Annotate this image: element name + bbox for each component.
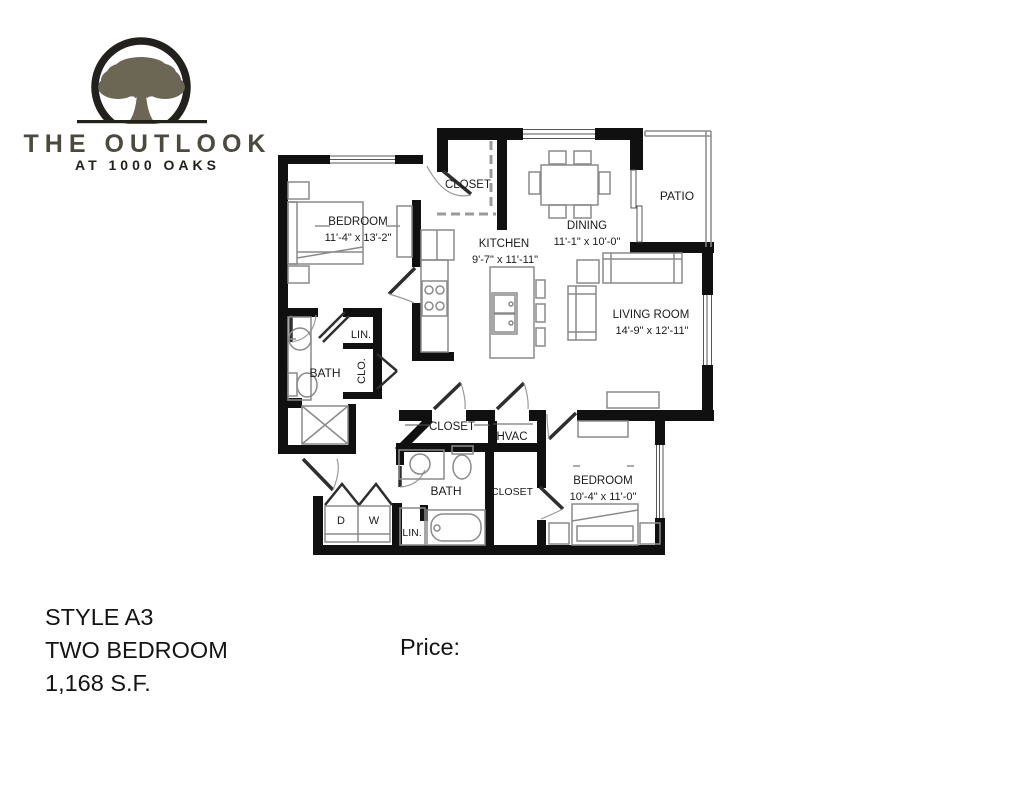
linen2-label: LIN. bbox=[402, 527, 421, 539]
washer-dryer-closet bbox=[325, 506, 390, 542]
price-label: Price: bbox=[400, 634, 460, 661]
sofa bbox=[603, 253, 682, 283]
kitchen-label: KITCHEN bbox=[479, 238, 529, 250]
side-table bbox=[577, 260, 599, 283]
armchair bbox=[568, 286, 596, 340]
console-table bbox=[607, 392, 659, 408]
style-label: STYLE A3 bbox=[45, 601, 228, 634]
bath2-label: BATH bbox=[430, 484, 461, 498]
stove bbox=[422, 281, 447, 316]
washer-label: W bbox=[369, 515, 380, 527]
room-labels: BEDROOM 11'-4" x 13'-2" CLOSET DINING 11… bbox=[309, 179, 694, 539]
dining-window bbox=[523, 128, 595, 140]
nightstand bbox=[288, 182, 309, 199]
hvac-label: HVAC bbox=[496, 431, 527, 443]
walkin-closet-label: CLOSET bbox=[491, 486, 534, 498]
bedroom2-dims: 10'-4" x 11'-0" bbox=[570, 491, 637, 503]
dining-dims: 11'-1" x 10'-0" bbox=[554, 236, 621, 248]
nightstand bbox=[549, 523, 569, 544]
patio-label: PATIO bbox=[660, 189, 694, 203]
bedroom1-window bbox=[330, 155, 395, 164]
dryer-label: D bbox=[337, 515, 345, 527]
dining-table-set bbox=[529, 151, 610, 218]
dresser-2 bbox=[578, 421, 628, 437]
hall-closet-label: CLOSET bbox=[429, 421, 475, 433]
unit-info: STYLE A3 TWO BEDROOM 1,168 S.F. bbox=[45, 601, 228, 700]
nightstand bbox=[288, 266, 309, 283]
bedroom2-label: BEDROOM bbox=[573, 475, 632, 487]
linen1-label: LIN. bbox=[351, 329, 371, 341]
dresser-1 bbox=[397, 206, 412, 257]
refrigerator bbox=[421, 230, 454, 260]
sink-2 bbox=[410, 454, 430, 474]
area-label: 1,168 S.F. bbox=[45, 667, 228, 700]
bed-2 bbox=[572, 504, 638, 545]
windows bbox=[330, 128, 713, 518]
bedroom2-window bbox=[655, 445, 665, 518]
patio-sliding-door bbox=[631, 170, 642, 242]
bedroom1-label: BEDROOM bbox=[328, 216, 387, 228]
bath1-label: BATH bbox=[309, 366, 340, 380]
living-label: LIVING ROOM bbox=[613, 309, 690, 321]
living-window bbox=[702, 295, 713, 365]
type-label: TWO BEDROOM bbox=[45, 634, 228, 667]
kitchen-dims: 9'-7" x 11'-11" bbox=[472, 254, 538, 266]
clo-label: CLO. bbox=[356, 358, 368, 384]
living-dims: 14'-9" x 12'-11" bbox=[616, 325, 689, 337]
dining-label: DINING bbox=[567, 220, 607, 232]
kitchen-island bbox=[490, 267, 545, 358]
floorplan-flyer: THE OUTLOOK AT 1000 OAKS bbox=[0, 0, 1024, 792]
shower bbox=[302, 406, 348, 444]
bathtub bbox=[427, 510, 485, 545]
entry-closet-label: CLOSET bbox=[445, 179, 491, 191]
bedroom1-dims: 11'-4" x 13'-2" bbox=[325, 232, 392, 244]
